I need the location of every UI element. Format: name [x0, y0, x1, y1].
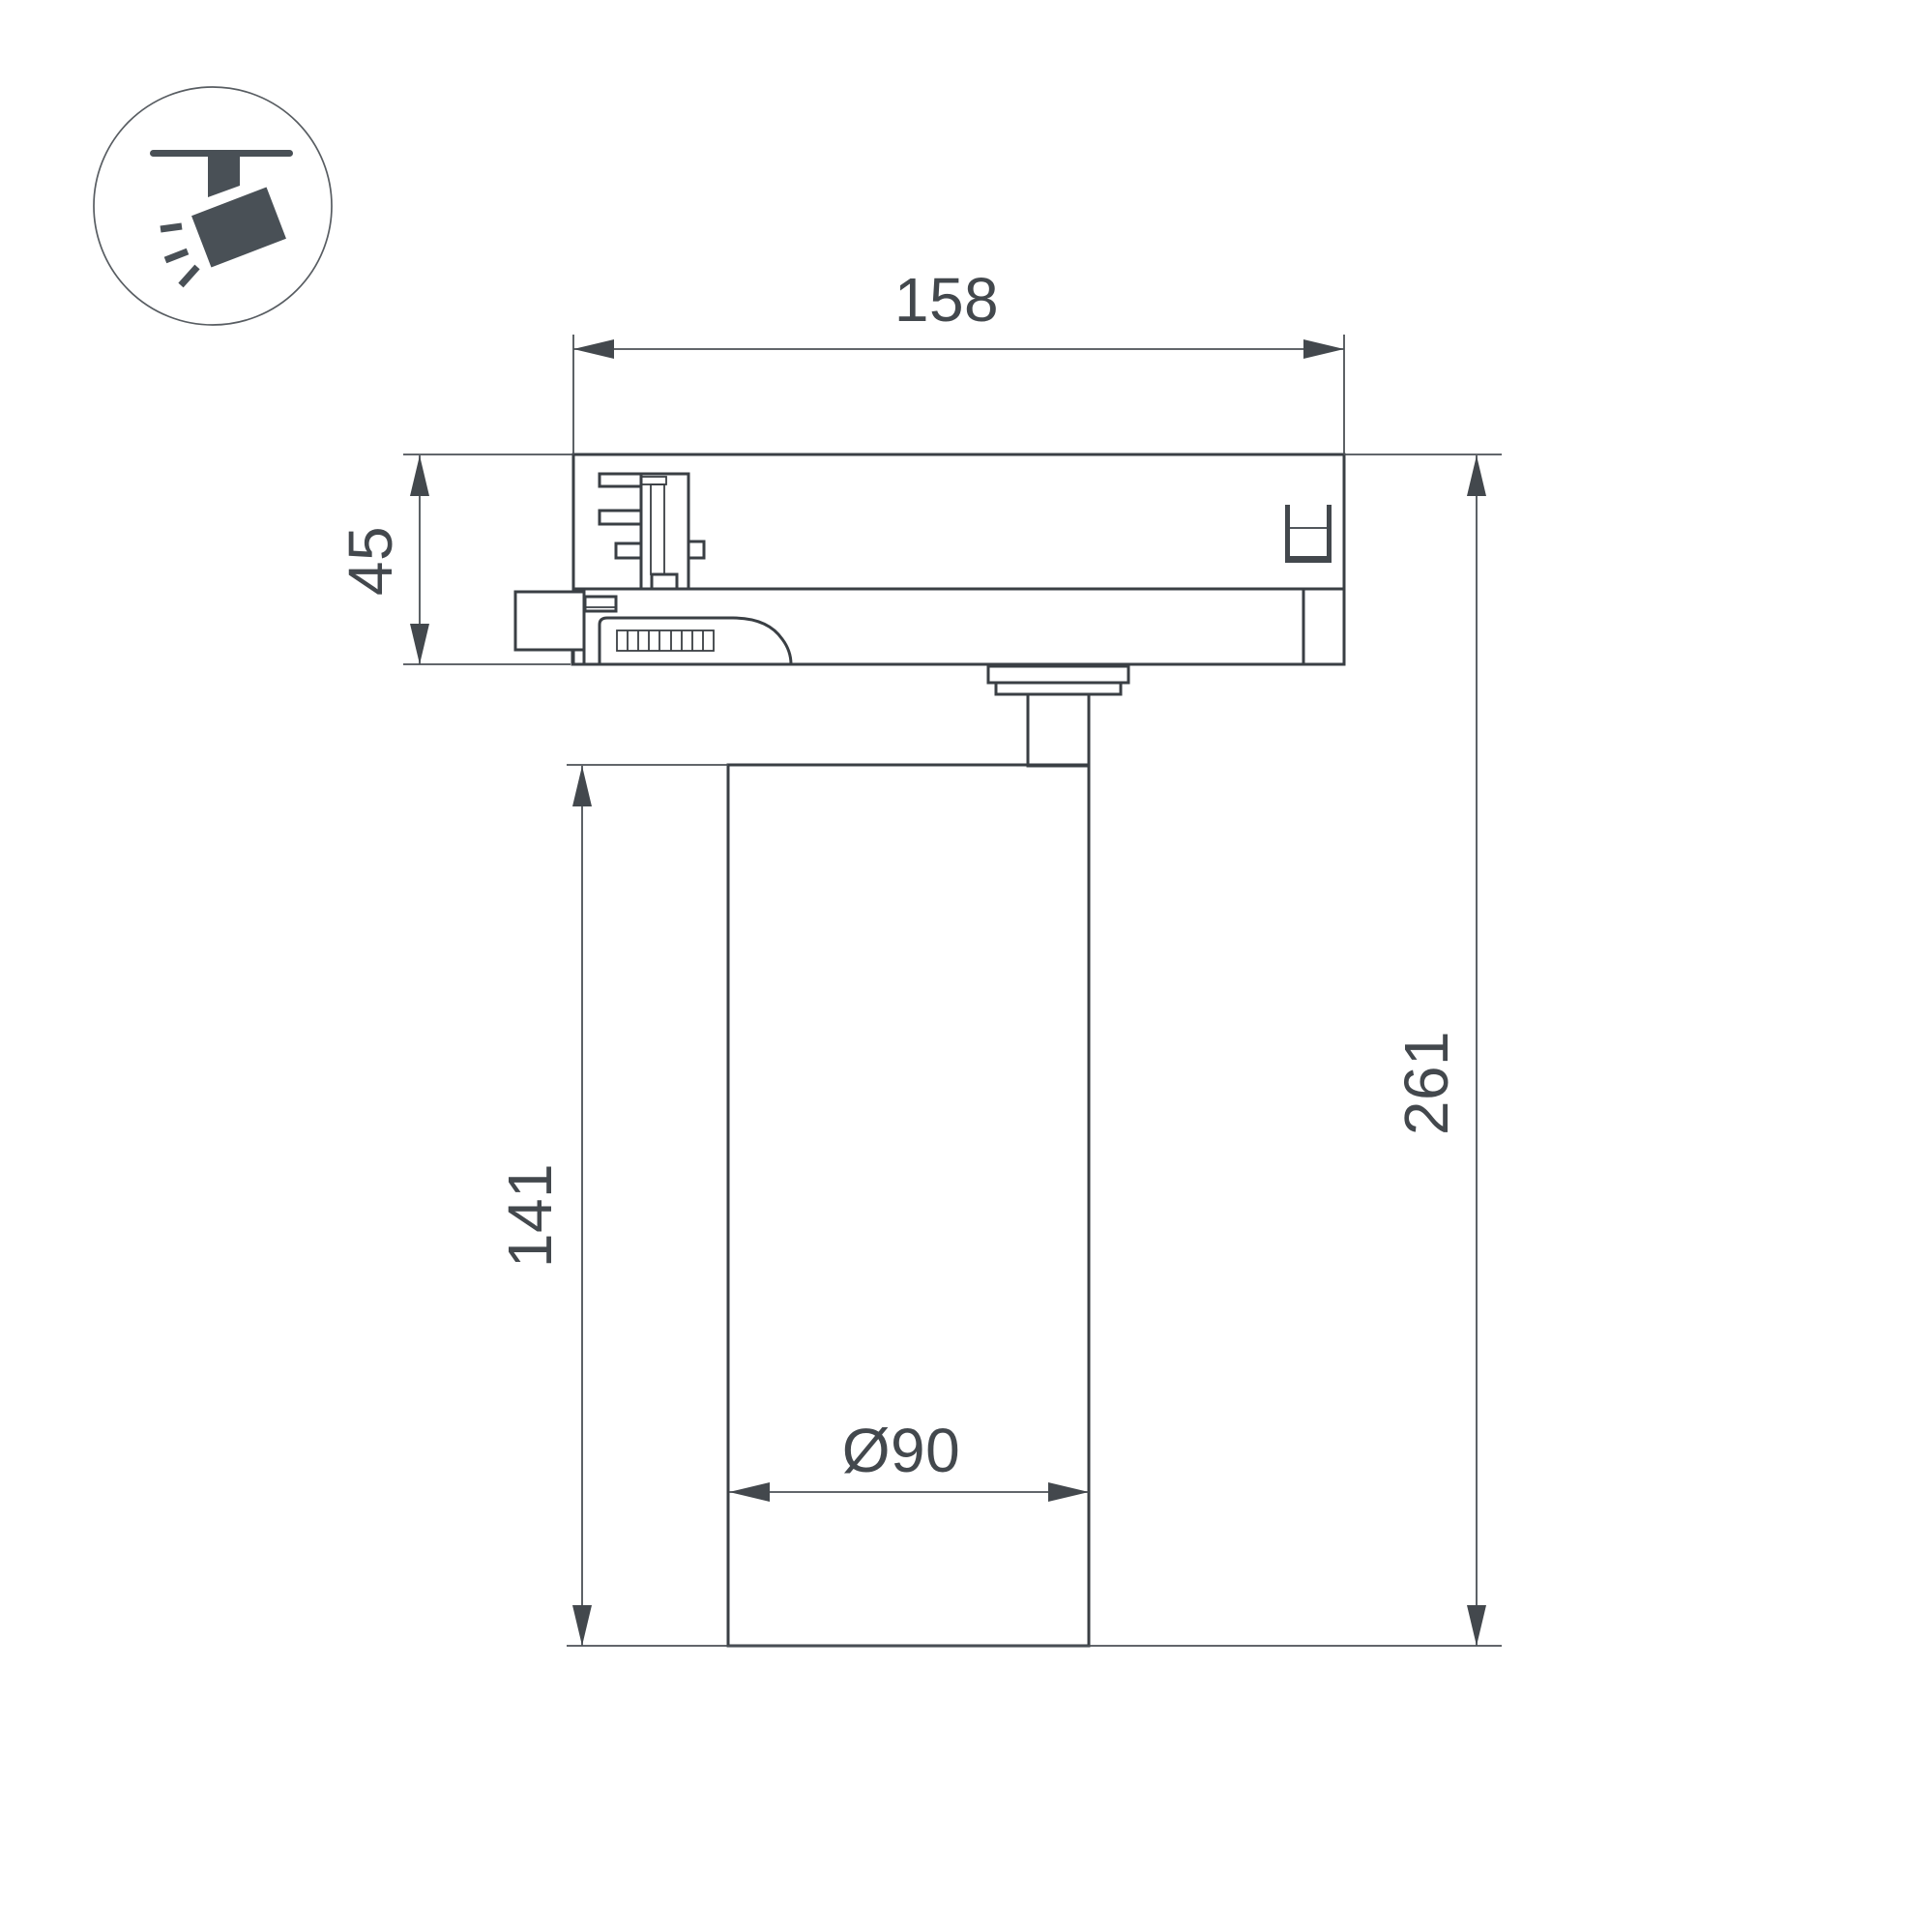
flange-step-2: [996, 683, 1121, 694]
icon-light-ray: [181, 267, 197, 285]
contact-module: [600, 474, 704, 589]
arrow-right: [1048, 1482, 1089, 1502]
swivel-arm: [988, 666, 1128, 766]
icon-light-ray: [165, 251, 188, 260]
dimension-label: 158: [894, 265, 999, 335]
track-spotlight-icon: [94, 87, 332, 325]
arrow-down: [572, 1605, 592, 1646]
dimension-label: 45: [336, 526, 405, 596]
arrow-up: [572, 766, 592, 806]
dimension-diameter-90: Ø90: [729, 1416, 1089, 1502]
arrow-left: [729, 1482, 770, 1502]
dimension-drawing: 158 45 141 261: [0, 0, 1932, 1932]
icon-lamp-head: [191, 188, 286, 268]
clip-left-bar: [1285, 505, 1290, 556]
contact-pin-bottom: [616, 543, 641, 558]
latch-tab: [585, 597, 616, 611]
arrow-up: [410, 455, 429, 496]
icon-light-ray: [161, 226, 182, 229]
contact-rod-foot: [652, 574, 677, 589]
technical-drawing-page: 158 45 141 261: [0, 0, 1932, 1932]
lamp-body: [728, 765, 1089, 1646]
flange-step-1: [988, 666, 1128, 683]
terminal-clip: [1285, 505, 1332, 563]
arrow-down: [410, 624, 429, 664]
adjuster-housing: [600, 618, 791, 664]
latch-block: [515, 592, 584, 650]
contact-rod-cap: [641, 477, 666, 484]
icon-mount-stem: [208, 153, 240, 197]
contact-tab-right: [688, 542, 704, 558]
adapter-lower-housing: [573, 589, 1344, 664]
dimension-height-261: 261: [1344, 454, 1502, 1646]
contact-pin-top: [600, 474, 641, 486]
dimension-height-141: 141: [495, 765, 728, 1646]
arrow-left: [573, 339, 614, 359]
arm-stem: [1028, 694, 1089, 766]
arrow-up: [1467, 455, 1486, 496]
clip-right-bar: [1327, 505, 1332, 556]
dimension-label: Ø90: [842, 1416, 960, 1485]
dimension-width-158: 158: [573, 265, 1344, 454]
contact-pin-middle: [600, 511, 641, 524]
contact-rod: [651, 484, 664, 574]
dimension-label: 141: [495, 1163, 565, 1268]
dimension-label: 261: [1391, 1031, 1461, 1135]
slider-ribs: [628, 630, 703, 651]
ribbed-slider: [617, 630, 714, 651]
arrow-down: [1467, 1605, 1486, 1646]
clip-bottom-bar: [1285, 556, 1332, 563]
arrow-right: [1303, 339, 1344, 359]
track-adapter: [515, 454, 1344, 766]
icon-circle: [94, 87, 332, 325]
